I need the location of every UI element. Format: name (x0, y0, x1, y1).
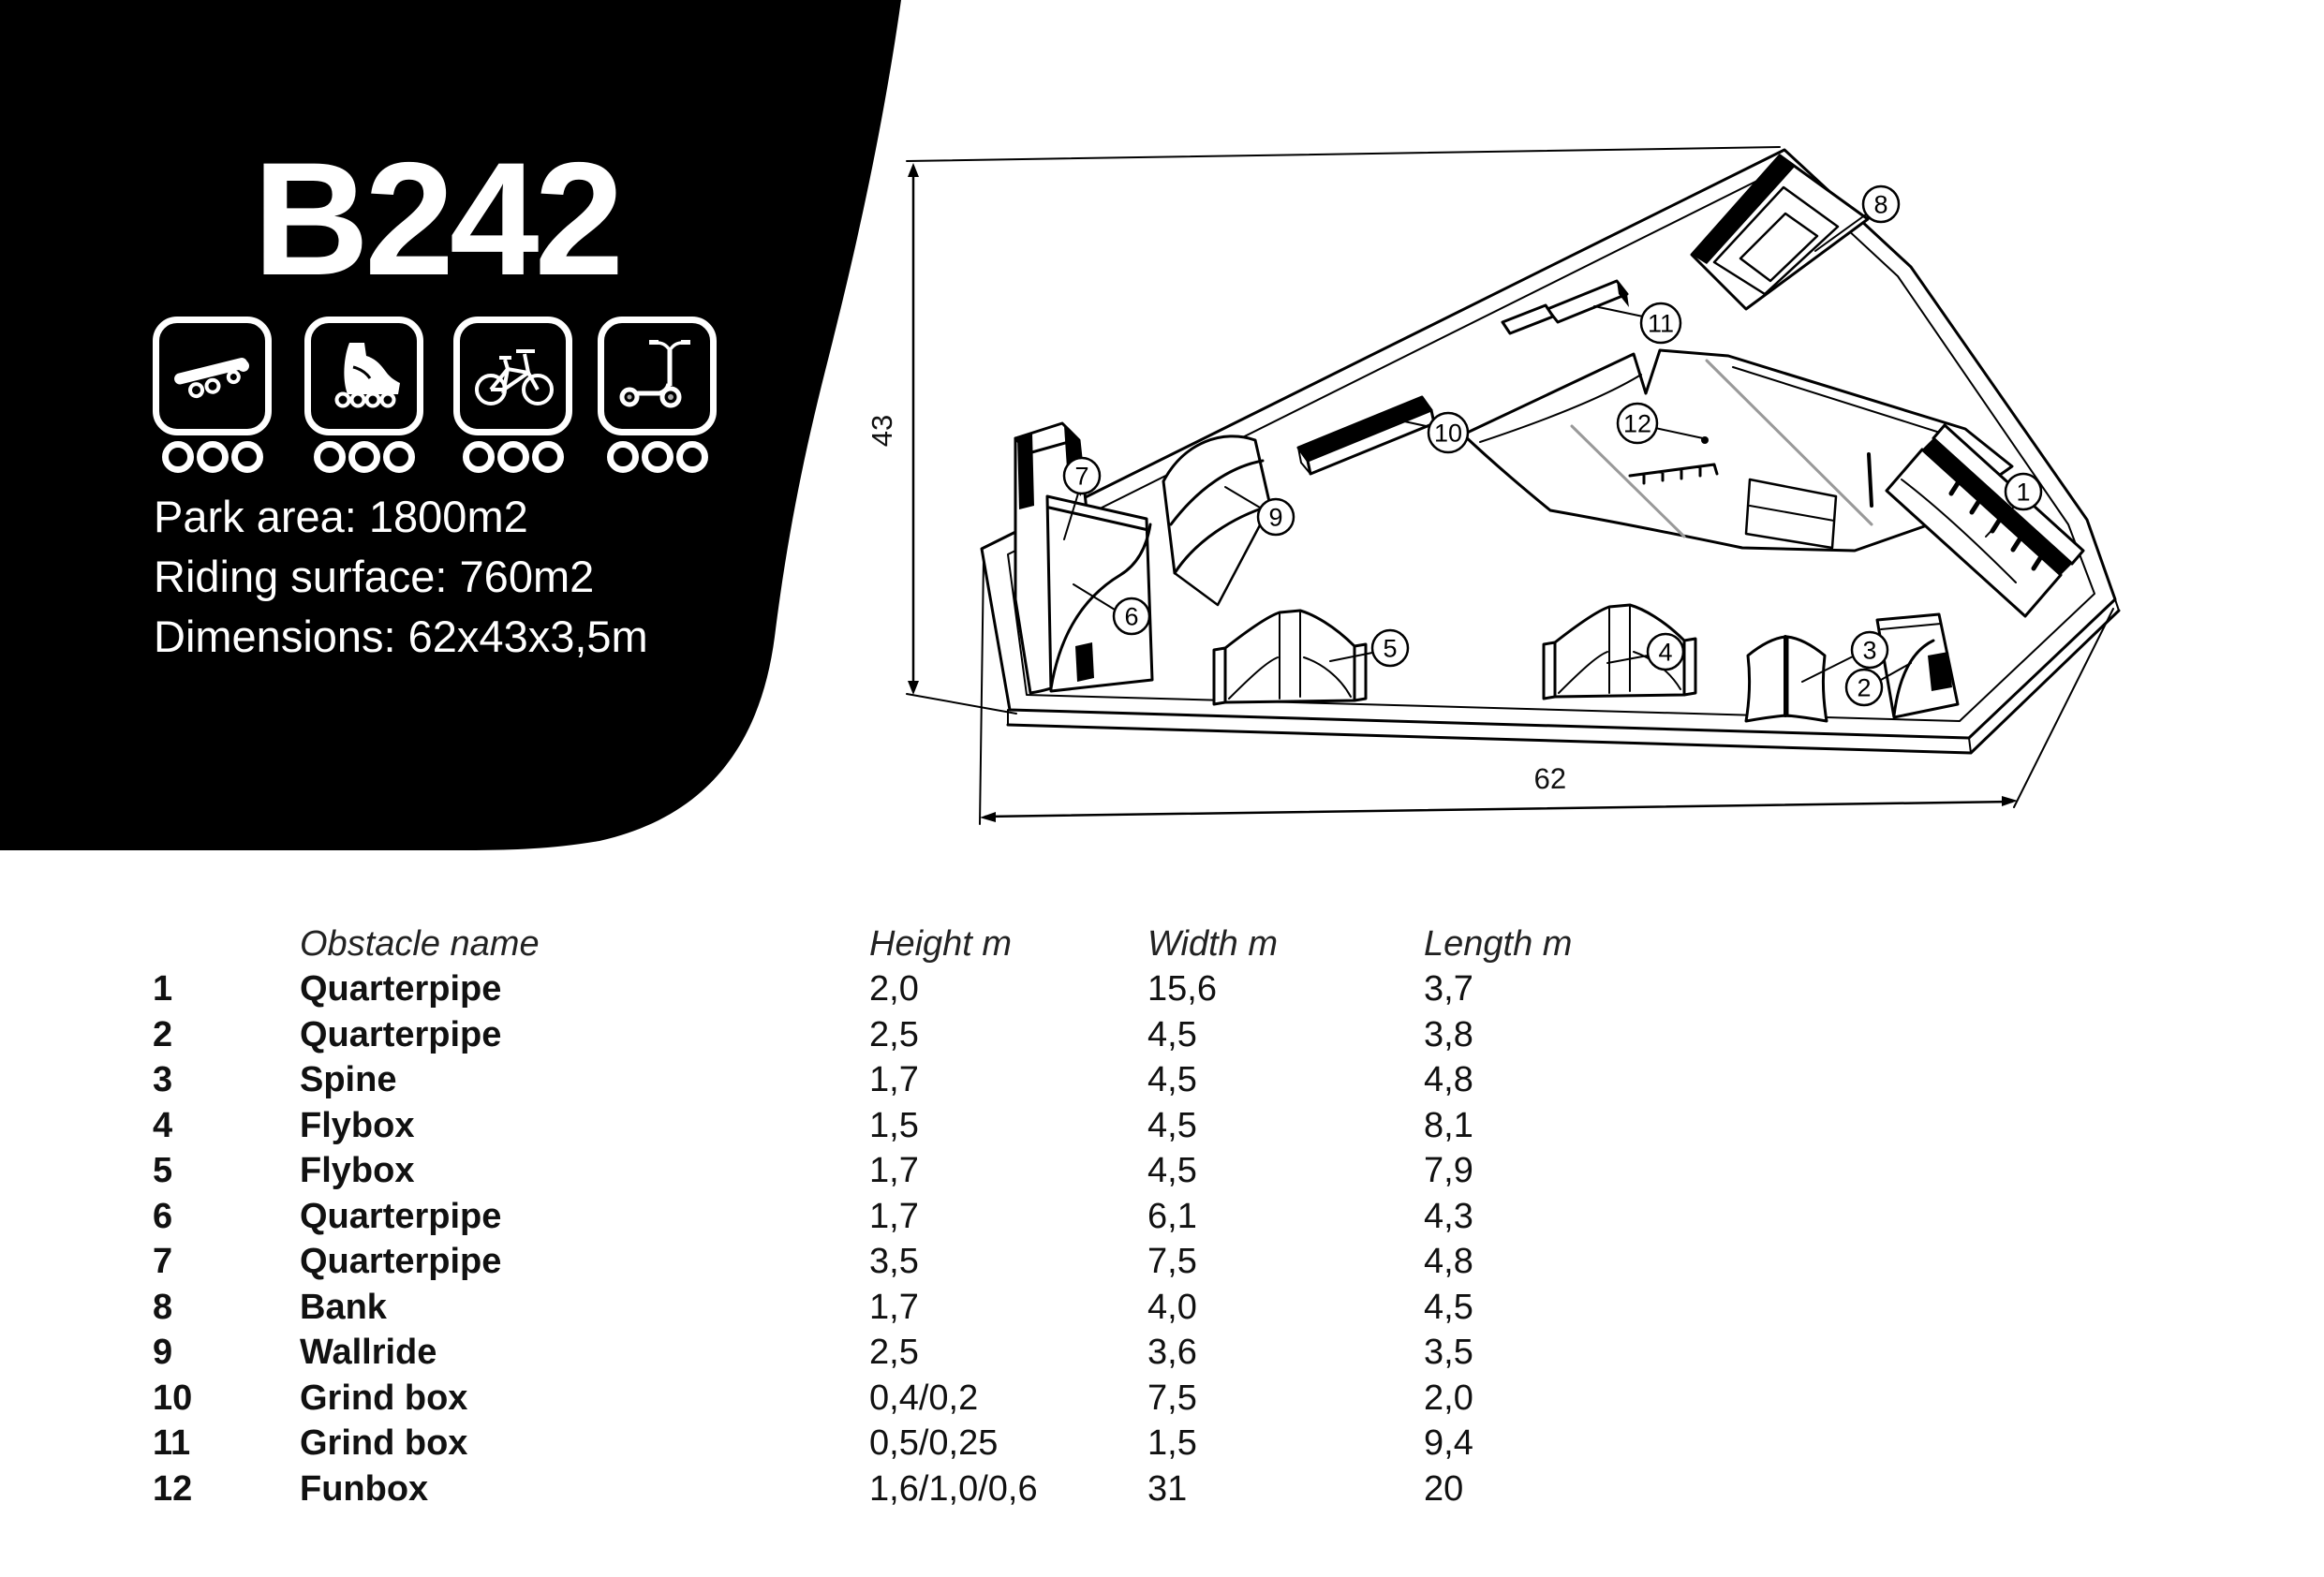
cell-height: 1,7 (869, 1151, 1147, 1191)
cell-name: Wallride (300, 1333, 869, 1373)
cell-no: 7 (153, 1242, 300, 1282)
cell-height: 1,7 (869, 1288, 1147, 1328)
cell-width: 7,5 (1147, 1378, 1424, 1419)
cell-name: Quarterpipe (300, 969, 869, 1010)
cell-name: Quarterpipe (300, 1015, 869, 1055)
park-area-line: Park area: 1800m2 (154, 487, 648, 547)
cell-no: 3 (153, 1060, 300, 1100)
callout-5: 5 (1372, 630, 1408, 666)
callout-9: 9 (1258, 499, 1294, 535)
leader-dot (1701, 436, 1709, 444)
cell-length: 3,8 (1424, 1015, 1792, 1055)
svg-text:1: 1 (2016, 478, 2030, 506)
table-row: 10Grind box0,4/0,27,52,0 (153, 1376, 1792, 1422)
callout-12: 12 (1618, 404, 1657, 443)
svg-text:10: 10 (1434, 419, 1462, 447)
cell-width: 7,5 (1147, 1242, 1424, 1282)
cell-name: Quarterpipe (300, 1242, 869, 1282)
callout-4: 4 (1648, 634, 1683, 670)
cell-height: 1,7 (869, 1060, 1147, 1100)
cell-width: 4,5 (1147, 1060, 1424, 1100)
cell-no: 10 (153, 1378, 300, 1419)
discipline-scooter (598, 317, 717, 473)
svg-text:9: 9 (1268, 503, 1282, 531)
cell-no: 2 (153, 1015, 300, 1055)
cell-width: 4,5 (1147, 1151, 1424, 1191)
park-info: Park area: 1800m2 Riding surface: 760m2 … (154, 487, 648, 667)
obstacle-grindbox-10 (1298, 397, 1434, 474)
svg-text:4: 4 (1658, 638, 1672, 666)
cell-width: 4,5 (1147, 1106, 1424, 1146)
obstacle-quarterpipe-2 (1877, 614, 1958, 717)
cell-length: 4,8 (1424, 1060, 1792, 1100)
cell-height: 1,5 (869, 1106, 1147, 1146)
cell-width: 31 (1147, 1469, 1424, 1510)
callout-8: 8 (1863, 186, 1899, 222)
callout-2: 2 (1846, 670, 1882, 705)
cell-no: 4 (153, 1106, 300, 1146)
callout-6: 6 (1114, 598, 1149, 634)
cell-no: 9 (153, 1333, 300, 1373)
cell-no: 11 (153, 1423, 300, 1464)
table-row: 12Funbox1,6/1,0/0,63120 (153, 1466, 1792, 1512)
cell-name: Spine (300, 1060, 869, 1100)
callout-7: 7 (1064, 458, 1100, 494)
svg-text:7: 7 (1074, 462, 1088, 490)
cell-length: 4,8 (1424, 1242, 1792, 1282)
obstacle-spine-3 (1746, 637, 1827, 721)
obstacle-wallride-9 (1163, 436, 1270, 605)
cell-length: 2,0 (1424, 1378, 1792, 1419)
cell-name: Flybox (300, 1106, 869, 1146)
table-row: 4Flybox1,54,58,1 (153, 1103, 1792, 1149)
cell-no: 1 (153, 969, 300, 1010)
cell-name: Flybox (300, 1151, 869, 1191)
callout-3: 3 (1852, 632, 1887, 668)
cell-height: 0,4/0,2 (869, 1378, 1147, 1419)
cell-name: Grind box (300, 1423, 869, 1464)
cell-width: 15,6 (1147, 969, 1424, 1010)
svg-text:8: 8 (1873, 190, 1887, 218)
table-row: 2Quarterpipe2,54,53,8 (153, 1012, 1792, 1058)
cell-length: 7,9 (1424, 1151, 1792, 1191)
table-row: 9Wallride2,53,63,5 (153, 1331, 1792, 1377)
obstacle-table-header: Obstacle name Height m Width m Length m (153, 921, 1792, 967)
table-row: 11Grind box0,5/0,251,59,4 (153, 1422, 1792, 1467)
discipline-bmx (453, 317, 572, 473)
cell-height: 2,5 (869, 1333, 1147, 1373)
cell-no: 6 (153, 1197, 300, 1237)
svg-text:3: 3 (1862, 636, 1876, 664)
svg-text:11: 11 (1648, 309, 1674, 337)
cell-height: 2,5 (869, 1015, 1147, 1055)
cell-name: Grind box (300, 1378, 869, 1419)
cell-height: 2,0 (869, 969, 1147, 1010)
cell-width: 6,1 (1147, 1197, 1424, 1237)
riding-surface-line: Riding surface: 760m2 (154, 547, 648, 607)
cell-height: 0,5/0,25 (869, 1423, 1147, 1464)
cell-height: 3,5 (869, 1242, 1147, 1282)
dim-width-label: 62 (1533, 762, 1566, 796)
cell-length: 3,7 (1424, 969, 1792, 1010)
table-row: 5Flybox1,74,57,9 (153, 1149, 1792, 1195)
page-title: B242 (253, 139, 619, 300)
inline-skates-icon (304, 317, 423, 435)
cell-height: 1,6/1,0/0,6 (869, 1469, 1147, 1510)
discipline-icons (153, 317, 752, 476)
cell-name: Quarterpipe (300, 1197, 869, 1237)
cell-height: 1,7 (869, 1197, 1147, 1237)
cell-length: 9,4 (1424, 1423, 1792, 1464)
callout-11: 11 (1641, 303, 1680, 343)
cell-no: 5 (153, 1151, 300, 1191)
svg-text:6: 6 (1124, 602, 1138, 630)
discipline-inline-skates (304, 317, 423, 473)
cell-width: 3,6 (1147, 1333, 1424, 1373)
scooter-rating (598, 441, 717, 473)
header-height: Height m (869, 924, 1147, 965)
cell-length: 4,5 (1424, 1288, 1792, 1328)
cell-no: 8 (153, 1288, 300, 1328)
obstacle-quarterpipe-6 (1047, 496, 1152, 691)
header-length: Length m (1424, 924, 1792, 965)
header-obstacle-name: Obstacle name (300, 924, 869, 965)
callout-10: 10 (1428, 413, 1468, 452)
callout-1: 1 (2006, 474, 2041, 509)
obstacle-table-rows: 1Quarterpipe2,015,63,72Quarterpipe2,54,5… (153, 967, 1792, 1512)
discipline-skateboard (153, 317, 272, 473)
dimensions-line: Dimensions: 62x43x3,5m (154, 607, 648, 667)
bmx-icon (453, 317, 572, 435)
table-row: 6Quarterpipe1,76,14,3 (153, 1194, 1792, 1240)
cell-length: 3,5 (1424, 1333, 1792, 1373)
cell-length: 8,1 (1424, 1106, 1792, 1146)
cell-name: Bank (300, 1288, 869, 1328)
svg-text:5: 5 (1383, 634, 1397, 662)
svg-text:12: 12 (1623, 409, 1651, 437)
obstacle-grindbox-11 (1502, 281, 1629, 333)
table-row: 7Quarterpipe3,57,54,8 (153, 1240, 1792, 1286)
skateboard-icon (153, 317, 272, 435)
cell-width: 1,5 (1147, 1423, 1424, 1464)
svg-text:2: 2 (1857, 673, 1871, 701)
header-width: Width m (1147, 924, 1424, 965)
dim-height-label: 43 (866, 415, 898, 447)
cell-length: 20 (1424, 1469, 1792, 1510)
cell-length: 4,3 (1424, 1197, 1792, 1237)
cell-no: 12 (153, 1469, 300, 1510)
obstacle-flybox-5 (1214, 611, 1366, 704)
cell-width: 4,0 (1147, 1288, 1424, 1328)
cell-width: 4,5 (1147, 1015, 1424, 1055)
table-row: 8Bank1,74,04,5 (153, 1285, 1792, 1331)
spec-sheet-page: 1 2 3 4 5 6 7 8 9 10 11 12 43 62 B242 (0, 0, 2324, 1577)
table-row: 1Quarterpipe2,015,63,7 (153, 967, 1792, 1013)
bmx-rating (453, 441, 572, 473)
table-row: 3Spine1,74,54,8 (153, 1058, 1792, 1104)
obstacle-table: Obstacle name Height m Width m Length m … (153, 921, 1792, 1512)
scooter-icon (598, 317, 717, 435)
cell-name: Funbox (300, 1469, 869, 1510)
inline-skates-rating (304, 441, 423, 473)
skateboard-rating (153, 441, 272, 473)
